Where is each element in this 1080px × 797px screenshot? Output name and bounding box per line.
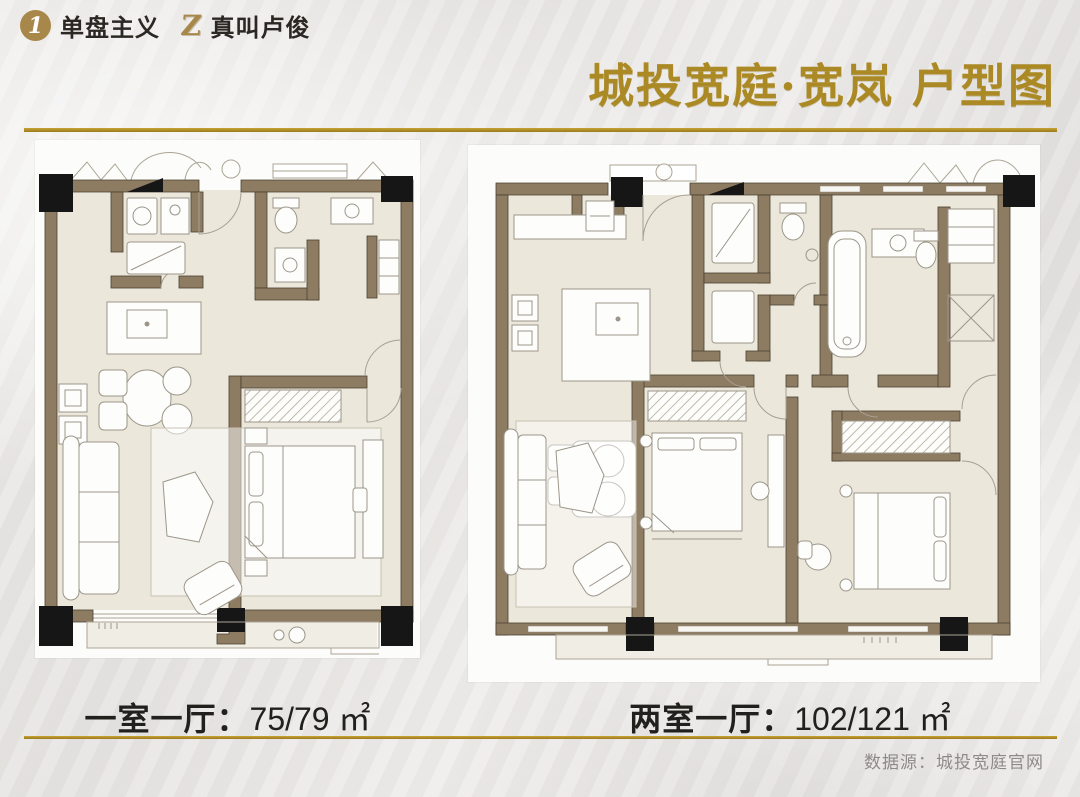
brand-danpan-text: 单盘主义 [60,8,160,43]
caption-two-bedroom-label: 两室一厅： [629,701,794,737]
floorplan-one-bedroom [35,140,420,658]
floorplan-one-bedroom-image [35,140,420,658]
danpan-logo-icon: 1 [20,10,51,41]
caption-one-bedroom: 一室一厅：75/79 ㎡ [35,694,420,740]
slide-background: 1 单盘主义 Z 真叫卢俊 城投宽庭·宽岚 户型图 [0,0,1080,797]
caption-one-bedroom-area: 75/79 ㎡ [250,701,371,737]
floorplan-two-bedroom-image [468,145,1040,682]
top-divider [24,128,1057,132]
caption-two-bedroom: 两室一厅：102/121 ㎡ [575,694,1005,740]
data-source-note: 数据源：城投宽庭官网 [864,748,1044,773]
page-title: 城投宽庭·宽岚 户型图 [588,50,1056,116]
floorplan-two-bedroom [468,145,1040,682]
caption-two-bedroom-area: 102/121 ㎡ [794,701,951,737]
bottom-divider [24,736,1057,739]
caption-one-bedroom-label: 一室一厅： [85,701,250,737]
zhenjiao-logo-icon: Z [180,12,203,40]
brand-zhenjiao-text: 真叫卢俊 [210,8,310,43]
brand-header: 1 单盘主义 Z 真叫卢俊 [20,8,310,43]
logo-one-glyph: 1 [28,15,43,37]
